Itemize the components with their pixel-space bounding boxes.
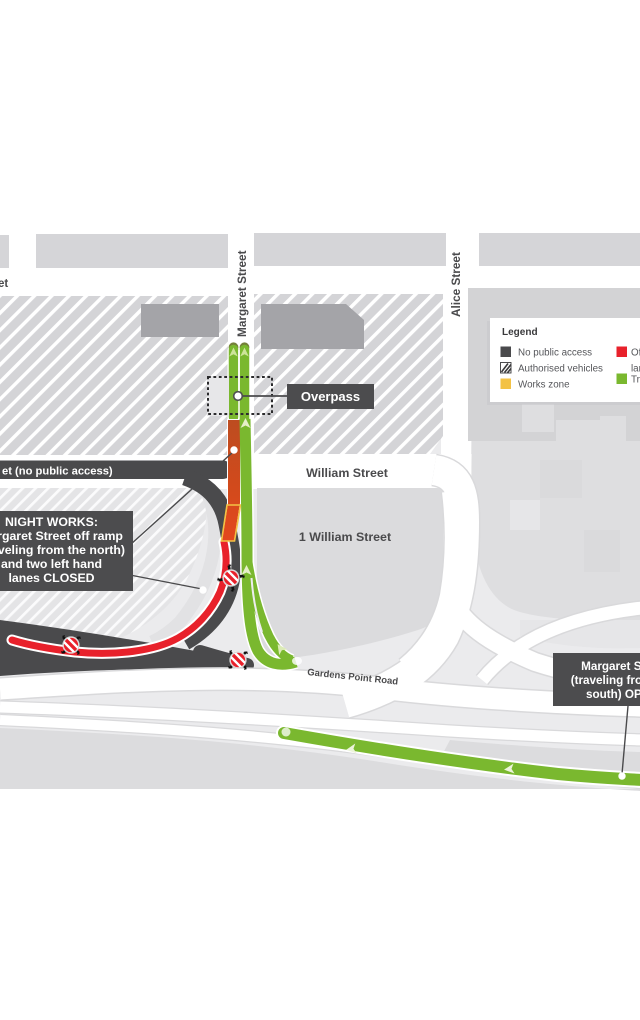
svg-text:No public access: No public access: [518, 348, 592, 359]
svg-text:Margaret St on: Margaret St on: [581, 660, 640, 673]
svg-text:(traveling from the north): (traveling from the north): [0, 543, 125, 557]
svg-text:(traveling from the: (traveling from the: [571, 674, 640, 687]
svg-text:Works zone: Works zone: [518, 380, 570, 391]
svg-text:Off ramp and: Off ramp and: [631, 348, 640, 359]
svg-text:Authorised vehicles: Authorised vehicles: [518, 364, 603, 375]
svg-text:Legend: Legend: [502, 327, 538, 338]
svg-text:et (no public access): et (no public access): [2, 466, 113, 478]
svg-text:Alice Street: Alice Street: [449, 252, 463, 317]
svg-text:Margaret Street: Margaret Street: [235, 250, 249, 337]
svg-text:NIGHT WORKS:: NIGHT WORKS:: [5, 515, 98, 529]
svg-text:William Street: William Street: [306, 466, 388, 480]
svg-text:Margaret Street off ramp: Margaret Street off ramp: [0, 529, 123, 543]
svg-text:1 William Street: 1 William Street: [299, 530, 391, 544]
svg-text:lanes closed: lanes closed: [631, 364, 640, 375]
svg-text:and two left hand: and two left hand: [1, 557, 102, 571]
svg-text:Overpass: Overpass: [301, 389, 360, 404]
svg-text:et: et: [0, 278, 8, 290]
svg-text:lanes CLOSED: lanes CLOSED: [8, 571, 94, 585]
svg-text:south) OPEN: south) OPEN: [586, 688, 640, 701]
svg-text:Traffic flow: Traffic flow: [631, 375, 640, 386]
